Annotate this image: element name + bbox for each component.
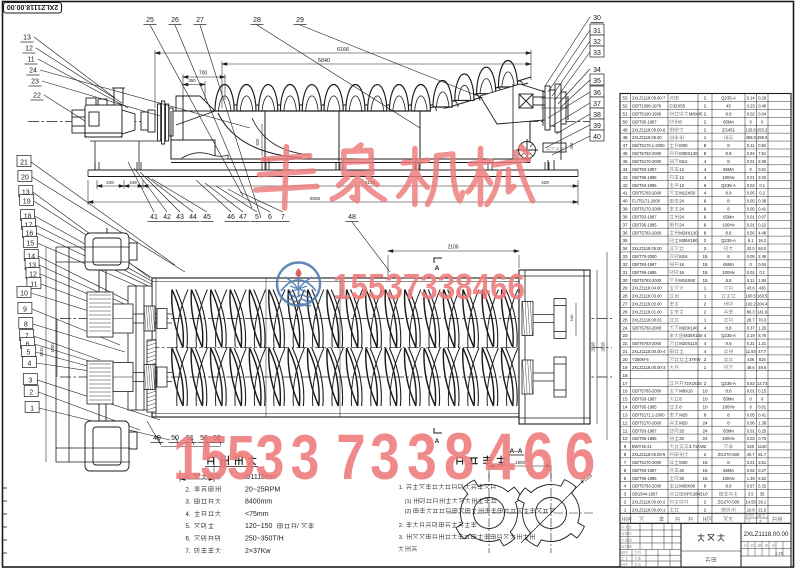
svg-text:65Mn: 65Mn [723, 468, 734, 473]
svg-text:8005: 8005 [310, 196, 321, 201]
svg-text:21: 21 [20, 160, 28, 167]
svg-text:2508: 2508 [591, 342, 596, 352]
svg-text:2XLZ1118.00.00-5: 2XLZ1118.00.00-5 [632, 452, 666, 457]
svg-text:0.25: 0.25 [758, 428, 767, 433]
svg-text:0.01: 0.01 [747, 428, 756, 433]
svg-text:253.2: 253.2 [757, 127, 768, 132]
svg-text:M12: M12 [679, 159, 688, 164]
svg-text:42.0: 42.0 [747, 246, 756, 251]
svg-text:24: 24 [679, 222, 684, 227]
svg-text:GB/T93-1987: GB/T93-1987 [632, 428, 657, 433]
svg-text:6: 6 [523, 419, 554, 493]
svg-text:2XLZ1118.02.00: 2XLZ1118.02.00 [632, 302, 662, 307]
svg-text:21.6: 21.6 [758, 507, 767, 512]
svg-text:GB/T95-1985: GB/T95-1985 [632, 270, 657, 275]
svg-text:8: 8 [704, 214, 707, 219]
svg-text:10: 10 [20, 291, 28, 298]
svg-text:160.5: 160.5 [757, 294, 768, 299]
svg-text:10.8: 10.8 [747, 507, 756, 512]
svg-text:816: 816 [759, 357, 767, 362]
svg-text:0.41: 0.41 [758, 412, 767, 417]
svg-text:18: 18 [622, 373, 628, 378]
svg-text:1: 1 [704, 135, 707, 140]
svg-text:0.05: 0.05 [747, 199, 756, 204]
svg-text:29.1: 29.1 [758, 500, 767, 505]
svg-text:30: 30 [622, 278, 628, 283]
svg-text:429: 429 [541, 180, 549, 185]
svg-text:0.15: 0.15 [758, 389, 767, 394]
svg-text:34: 34 [622, 246, 628, 251]
svg-text:65Mn: 65Mn [723, 262, 734, 267]
svg-text:20: 20 [622, 357, 628, 362]
svg-text:7: 7 [281, 214, 285, 221]
svg-text:GB/T5783-2000: GB/T5783-2000 [632, 341, 662, 346]
svg-text:GB/T5171.1-2000: GB/T5171.1-2000 [632, 412, 665, 417]
svg-text:47: 47 [622, 143, 628, 148]
svg-text:449: 449 [129, 180, 137, 185]
svg-text:6: 6 [565, 419, 596, 493]
svg-text:2×37Kw: 2×37Kw [245, 548, 271, 555]
svg-text:45: 45 [726, 104, 731, 109]
svg-text:ZG451: ZG451 [722, 127, 736, 132]
svg-text:40.7: 40.7 [747, 452, 756, 457]
svg-text:32: 32 [622, 262, 628, 267]
svg-text:2XLZ1118.00.00-1: 2XLZ1118.00.00-1 [632, 507, 666, 512]
svg-text:33: 33 [593, 50, 601, 57]
svg-text:5840: 5840 [318, 58, 330, 64]
svg-text:SPC2843: SPC2843 [684, 492, 703, 497]
svg-text:6: 6 [268, 214, 272, 221]
svg-text:4: 4 [27, 361, 31, 368]
svg-text:GB/T5783-2000: GB/T5783-2000 [632, 278, 662, 283]
svg-text:23: 23 [622, 333, 628, 338]
svg-text:5.52: 5.52 [758, 476, 767, 481]
svg-text:2XLZ1118.03.00: 2XLZ1118.03.00 [632, 294, 662, 299]
svg-text:3: 3 [407, 420, 437, 493]
svg-text:GB/T6170-2000: GB/T6170-2000 [632, 207, 662, 212]
svg-text:26: 26 [622, 309, 628, 314]
svg-text:0.84: 0.84 [758, 143, 767, 148]
svg-text:100Hv: 100Hv [722, 405, 735, 410]
svg-text:8: 8 [24, 322, 28, 329]
svg-text:4: 4 [704, 159, 707, 164]
svg-text:5: 5 [27, 350, 31, 357]
svg-text:2: 2 [704, 119, 707, 124]
svg-text:49: 49 [622, 127, 628, 132]
svg-text:30: 30 [679, 468, 684, 473]
svg-text:Q235-A: Q235-A [721, 333, 736, 338]
svg-text:20: 20 [679, 436, 684, 441]
svg-text:11: 11 [27, 57, 34, 64]
svg-text:2: 2 [704, 246, 707, 251]
svg-text:35: 35 [760, 492, 765, 497]
svg-text:14: 14 [622, 405, 628, 410]
svg-text:44: 44 [622, 167, 628, 172]
svg-text:9: 9 [624, 444, 627, 449]
svg-text:2XLZ1118.00.00: 2XLZ1118.00.00 [7, 3, 58, 10]
svg-text:GB1544-1997: GB1544-1997 [632, 492, 658, 497]
svg-text:65Mn: 65Mn [723, 214, 734, 219]
svg-text:24: 24 [702, 428, 708, 433]
svg-text:36: 36 [622, 230, 628, 235]
svg-text:65Mn: 65Mn [723, 167, 734, 172]
svg-text:250~350T/H: 250~350T/H [245, 536, 284, 543]
svg-text:0.02: 0.02 [747, 111, 756, 116]
svg-text:47.7: 47.7 [758, 349, 767, 354]
svg-text:120~150: 120~150 [245, 523, 273, 530]
svg-text:GB/T6170.1-2000: GB/T6170.1-2000 [632, 143, 665, 148]
svg-text:1140: 1140 [758, 444, 768, 449]
svg-text:2: 2 [704, 507, 707, 512]
svg-text:4.48: 4.48 [758, 230, 767, 235]
svg-text:2: 2 [704, 452, 707, 457]
svg-text:0.05: 0.05 [747, 254, 756, 259]
svg-text:3.: 3. [399, 535, 404, 541]
svg-text:4: 4 [704, 341, 707, 346]
svg-text:29: 29 [622, 286, 628, 291]
svg-text:1: 1 [704, 294, 707, 299]
svg-text:22: 22 [33, 93, 41, 100]
svg-text:22: 22 [622, 341, 628, 346]
svg-text:2: 2 [704, 444, 707, 449]
svg-text:5: 5 [200, 424, 228, 493]
svg-text:81.7: 81.7 [758, 452, 767, 457]
svg-text:ZG270-500: ZG270-500 [718, 500, 740, 505]
svg-text:10: 10 [622, 436, 628, 441]
svg-text:2: 2 [704, 357, 707, 362]
svg-text:8.8: 8.8 [726, 191, 733, 196]
svg-text:5: 5 [227, 424, 255, 493]
svg-text:M30X130: M30X130 [679, 151, 698, 156]
svg-text:8: 8 [704, 199, 707, 204]
svg-text:1:16: 1:16 [775, 551, 784, 556]
svg-text:3815: 3815 [39, 347, 44, 357]
svg-text:2XLZ1118.00.00-7: 2XLZ1118.00.00-7 [632, 96, 666, 101]
svg-text:4: 4 [624, 484, 627, 489]
svg-text:Q235-A: Q235-A [721, 96, 736, 101]
svg-text:28: 28 [253, 17, 261, 24]
svg-text:GB/T1096-1979: GB/T1096-1979 [632, 104, 662, 109]
svg-text:2XLZ1118.00.00: 2XLZ1118.00.00 [744, 531, 789, 538]
svg-text:BWY45-21: BWY45-21 [632, 444, 653, 449]
svg-text:0.14: 0.14 [747, 96, 756, 101]
svg-text:46: 46 [622, 151, 628, 156]
svg-text:29: 29 [296, 17, 304, 24]
svg-text:3.02: 3.02 [758, 175, 767, 180]
svg-text:37: 37 [593, 101, 601, 108]
svg-text:50: 50 [622, 119, 628, 124]
svg-text:3.71KW: 3.71KW [689, 444, 705, 449]
svg-text:43: 43 [176, 214, 184, 221]
svg-text:9: 9 [23, 307, 27, 314]
svg-text:7: 7 [336, 422, 365, 493]
svg-text:0.11: 0.11 [747, 143, 755, 148]
svg-text:M12X50: M12X50 [679, 191, 696, 196]
svg-text:11: 11 [30, 282, 37, 289]
svg-text:45: 45 [203, 214, 211, 221]
svg-text:15: 15 [622, 397, 628, 402]
svg-text:7.: 7. [185, 549, 190, 555]
svg-text:Q235-A: Q235-A [721, 183, 736, 188]
svg-text:40: 40 [593, 134, 601, 141]
svg-text:GB/T95-1985: GB/T95-1985 [632, 405, 657, 410]
svg-text:6166: 6166 [337, 47, 349, 53]
svg-text:12: 12 [622, 420, 628, 425]
svg-text:0.02: 0.02 [747, 183, 756, 188]
svg-text:12: 12 [679, 175, 684, 180]
svg-text:2XLZ1118.00.00-6: 2XLZ1118.00.00-6 [632, 127, 666, 132]
svg-text:Q235-A: Q235-A [721, 381, 736, 386]
svg-text:38: 38 [593, 112, 601, 119]
svg-text:0.22: 0.22 [758, 222, 767, 227]
svg-text:0.37: 0.37 [747, 325, 756, 330]
svg-text:25: 25 [146, 17, 154, 24]
svg-text:15: 15 [702, 270, 708, 275]
svg-text:1: 1 [704, 365, 707, 370]
svg-text:15: 15 [702, 278, 708, 283]
svg-text:8.8: 8.8 [726, 325, 733, 330]
svg-text:GB/T5783-2000: GB/T5783-2000 [632, 230, 662, 235]
svg-text:8: 8 [704, 222, 707, 227]
svg-text:14.73: 14.73 [757, 381, 768, 386]
svg-text:GB/T5170-2000: GB/T5170-2000 [632, 460, 662, 465]
svg-text:GB/T93-1987: GB/T93-1987 [632, 262, 657, 267]
svg-text:C32X55: C32X55 [670, 104, 686, 109]
svg-text:5: 5 [255, 214, 259, 221]
svg-text:32: 32 [593, 39, 601, 46]
svg-text:0.38: 0.38 [758, 199, 767, 204]
svg-text:2XLZ1118.00.00-3: 2XLZ1118.00.00-3 [632, 365, 666, 370]
svg-text:1: 1 [624, 507, 627, 512]
svg-text:0.01: 0.01 [747, 222, 756, 227]
svg-text:2.19: 2.19 [747, 333, 756, 338]
svg-text:GB/T6170-2000: GB/T6170-2000 [632, 159, 662, 164]
svg-text:820: 820 [255, 138, 260, 146]
svg-text:49.6: 49.6 [758, 365, 767, 370]
svg-text:45: 45 [622, 159, 628, 164]
svg-text:15: 15 [702, 262, 708, 267]
svg-text:700: 700 [199, 71, 208, 77]
svg-text:0.63: 0.63 [747, 381, 756, 386]
svg-text:0.46: 0.46 [758, 104, 767, 109]
svg-text:M20X110: M20X110 [679, 341, 698, 346]
svg-text:100Hv: 100Hv [722, 222, 735, 227]
svg-text:40: 40 [622, 199, 628, 204]
svg-text:0.1: 0.1 [759, 270, 765, 275]
svg-text:14.55: 14.55 [746, 500, 757, 505]
svg-text:ZG270-500: ZG270-500 [718, 452, 740, 457]
svg-text:1: 1 [704, 286, 707, 291]
svg-text:2: 2 [29, 390, 33, 397]
svg-text:4: 4 [704, 349, 707, 354]
svg-text:39: 39 [593, 123, 601, 130]
svg-text:0.04: 0.04 [758, 262, 767, 267]
svg-text:6: 6 [624, 468, 627, 473]
svg-text:GB/T95-1985: GB/T95-1985 [632, 436, 657, 441]
svg-text:0.01: 0.01 [747, 159, 756, 164]
svg-text:24: 24 [679, 214, 684, 219]
svg-text:8: 8 [704, 484, 707, 489]
svg-text:26: 26 [171, 17, 179, 24]
svg-text:2.: 2. [399, 523, 404, 529]
svg-text:459.0: 459.0 [757, 135, 768, 140]
svg-text:8: 8 [704, 207, 707, 212]
svg-text:M8X45: M8X45 [689, 111, 703, 116]
svg-text:2XLZ1118.00.00-4: 2XLZ1118.00.00-4 [632, 349, 666, 354]
svg-text:2XLZ1118.06.00: 2XLZ1118.06.00 [632, 135, 662, 140]
svg-text:160.5: 160.5 [746, 294, 757, 299]
svg-text:1.38: 1.38 [758, 420, 767, 425]
svg-text:GB/T95-1985: GB/T95-1985 [632, 222, 657, 227]
svg-text:GB/T95-1987: GB/T95-1987 [632, 119, 657, 124]
svg-text:38: 38 [622, 214, 628, 219]
svg-text:13: 13 [23, 35, 31, 42]
svg-text:8: 8 [444, 419, 474, 493]
svg-text:36: 36 [593, 90, 601, 97]
svg-text:0.27: 0.27 [758, 468, 767, 473]
svg-text:48: 48 [622, 135, 628, 140]
svg-text:48: 48 [348, 214, 356, 221]
svg-text:21: 21 [622, 349, 628, 354]
svg-text:0.2: 0.2 [759, 191, 765, 196]
svg-text:5: 5 [624, 476, 627, 481]
svg-text:8.8: 8.8 [726, 341, 733, 346]
svg-text:37KW: 37KW [689, 357, 702, 362]
svg-text:141.6: 141.6 [757, 309, 768, 314]
svg-text:0.04: 0.04 [758, 111, 767, 116]
svg-text:42: 42 [163, 214, 171, 221]
svg-text:M30X90: M30X90 [679, 484, 696, 489]
svg-text:10: 10 [702, 397, 708, 402]
svg-text:4: 4 [704, 191, 707, 196]
svg-text:0.01: 0.01 [747, 175, 756, 180]
svg-text:FL/T5171-2000: FL/T5171-2000 [632, 199, 661, 204]
svg-text:2: 2 [624, 500, 627, 505]
svg-text:M20: M20 [679, 420, 688, 425]
svg-text:0.01: 0.01 [747, 214, 756, 219]
svg-text:7: 7 [624, 460, 627, 465]
svg-text:M20X140: M20X140 [679, 325, 698, 330]
svg-text:24: 24 [702, 420, 708, 425]
svg-text:Q235-A: Q235-A [721, 238, 736, 243]
svg-text:(1): (1) [405, 499, 412, 505]
svg-text:8.8: 8.8 [726, 111, 733, 116]
svg-text:2: 2 [704, 381, 707, 386]
svg-text:65Mn: 65Mn [723, 119, 734, 124]
svg-text:0.56: 0.56 [747, 230, 756, 235]
svg-text:3: 3 [256, 423, 285, 493]
svg-text:2: 2 [704, 500, 707, 505]
svg-text:46: 46 [227, 214, 235, 221]
svg-text:12: 12 [679, 183, 684, 188]
svg-text:8: 8 [704, 230, 707, 235]
svg-text:2100: 2100 [447, 245, 458, 251]
svg-text:1.26: 1.26 [758, 325, 767, 330]
svg-text:GB/T93-1987: GB/T93-1987 [632, 167, 657, 172]
svg-text:GB/T5783-2000: GB/T5783-2000 [632, 191, 662, 196]
svg-text:6: 6 [704, 183, 707, 188]
svg-text:8: 8 [624, 452, 627, 457]
svg-text:5.32: 5.32 [758, 484, 767, 489]
svg-text:GB/T53-1985: GB/T53-1985 [632, 183, 657, 188]
svg-text:100Hv: 100Hv [722, 476, 735, 481]
svg-text:M8X16: M8X16 [679, 389, 693, 394]
svg-text:3: 3 [28, 378, 32, 385]
svg-text:102.2: 102.2 [746, 302, 757, 307]
svg-text:0.31: 0.31 [747, 341, 756, 346]
svg-text:<75mm: <75mm [245, 511, 269, 518]
svg-text:0.05: 0.05 [747, 191, 756, 196]
svg-text:37: 37 [622, 222, 628, 227]
svg-text:436: 436 [747, 357, 755, 362]
svg-text:2: 2 [704, 127, 707, 132]
svg-text:15: 15 [26, 241, 34, 248]
svg-text:4: 4 [704, 333, 707, 338]
svg-text:16: 16 [679, 270, 684, 275]
svg-text:27: 27 [622, 302, 628, 307]
svg-text:0.76: 0.76 [758, 436, 767, 441]
svg-text:M16X60: M16X60 [679, 278, 696, 283]
svg-text:24: 24 [622, 325, 628, 330]
svg-text:8.8: 8.8 [726, 230, 733, 235]
svg-text:3.51: 3.51 [758, 460, 767, 465]
svg-text:43: 43 [622, 175, 628, 180]
svg-text:0.28: 0.28 [758, 96, 767, 101]
svg-text:28.7: 28.7 [747, 317, 756, 322]
svg-text:1.84: 1.84 [758, 278, 767, 283]
svg-text:52: 52 [622, 104, 628, 109]
svg-text:1: 1 [704, 317, 707, 322]
svg-text:GB/T95-1985: GB/T95-1985 [632, 175, 657, 180]
svg-text:6.: 6. [185, 537, 190, 543]
svg-text:1.31: 1.31 [758, 341, 767, 346]
svg-text:19: 19 [23, 199, 31, 206]
svg-text:100Hv: 100Hv [722, 436, 735, 441]
svg-text:47: 47 [239, 214, 247, 221]
svg-text:4: 4 [485, 419, 515, 493]
svg-text:4: 4 [704, 325, 707, 330]
svg-text:86.3: 86.3 [747, 309, 756, 314]
svg-text:8.8: 8.8 [726, 278, 733, 283]
svg-text:0.07: 0.07 [758, 214, 767, 219]
svg-text:520: 520 [747, 444, 755, 449]
svg-text:350: 350 [188, 78, 196, 83]
svg-text:2: 2 [704, 96, 707, 101]
svg-text:27: 27 [196, 17, 204, 24]
svg-text:13: 13 [622, 412, 628, 417]
svg-text:15: 15 [702, 476, 708, 481]
svg-text:2: 2 [704, 111, 707, 116]
svg-text:4: 4 [704, 167, 707, 172]
svg-text:2.46: 2.46 [758, 254, 767, 259]
svg-text:24: 24 [679, 207, 684, 212]
svg-text:(2): (2) [405, 509, 412, 515]
svg-text:20: 20 [21, 175, 29, 182]
svg-text:30: 30 [679, 476, 684, 481]
svg-text:8: 8 [704, 412, 707, 417]
svg-text:GB/T95-1985: GB/T95-1985 [632, 476, 657, 481]
svg-text:8.8: 8.8 [726, 151, 733, 156]
svg-text:0.05: 0.05 [747, 412, 756, 417]
svg-text:M30: M30 [679, 460, 688, 465]
svg-text:17: 17 [622, 381, 628, 386]
svg-text:10: 10 [702, 492, 708, 497]
svg-text:30: 30 [593, 15, 601, 22]
svg-text:GB/T5783-2000: GB/T5783-2000 [632, 325, 662, 330]
svg-text:GB/T5783-2000: GB/T5783-2000 [632, 484, 662, 489]
svg-text:M30X140: M30X140 [684, 333, 703, 338]
svg-text:M20: M20 [679, 412, 688, 417]
